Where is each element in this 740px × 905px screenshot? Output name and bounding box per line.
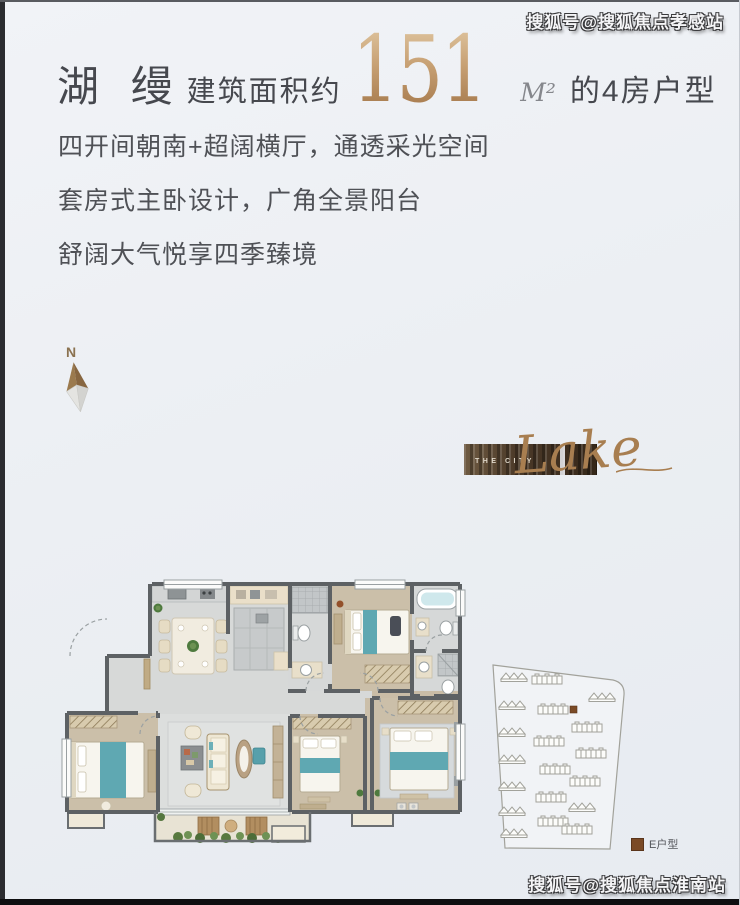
living-room <box>168 722 283 806</box>
bed <box>390 728 448 790</box>
watermark-bottom-right: 搜狐号@搜狐焦点淮南站 <box>528 871 726 896</box>
dining-area <box>152 586 230 674</box>
dresser <box>148 750 156 792</box>
feature-list: 四开间朝南+超阔横厅，通透采光空间 套房式主卧设计，广角全景阳台 舒阔大气悦享四… <box>58 133 490 295</box>
bench <box>400 794 428 799</box>
dresser <box>334 614 342 644</box>
photo-edge-top <box>0 0 740 2</box>
toilet <box>440 621 452 635</box>
logo-flourish-icon <box>616 464 674 476</box>
feature-line: 套房式主卧设计，广角全景阳台 <box>58 187 490 216</box>
wardrobe <box>398 701 453 714</box>
plant <box>357 790 364 797</box>
wardrobe <box>365 665 410 683</box>
area-suffix: 的4房户型 <box>570 66 717 110</box>
watermark-top-right: 搜狐号@搜狐焦点孝感站 <box>526 8 724 33</box>
photo-edge-bottom <box>0 899 740 905</box>
area-value: 151 <box>352 24 485 116</box>
bench <box>308 797 330 802</box>
toilet <box>442 680 454 694</box>
feature-line: 舒阔大气悦享四季臻境 <box>58 241 490 270</box>
sofa <box>207 734 229 790</box>
ball <box>337 601 344 608</box>
legend-swatch <box>631 838 644 851</box>
area-prefix: 建筑面积约 <box>187 68 342 110</box>
foyer <box>144 659 150 689</box>
shower <box>292 587 328 613</box>
project-logo: THE CITY Lake <box>464 438 679 494</box>
highlight-unit-marker <box>570 706 577 713</box>
dresser <box>300 804 326 809</box>
armchair <box>185 726 201 739</box>
pouf <box>101 801 111 811</box>
lounge-chair <box>198 817 219 835</box>
site-plan <box>484 640 686 855</box>
table <box>225 820 237 832</box>
bed <box>345 610 409 654</box>
ottoman <box>253 748 265 764</box>
page-title: 湖 缦 <box>57 53 183 114</box>
site-legend: E户型 <box>631 836 678 852</box>
logo-script-text: Lake <box>512 418 644 487</box>
armchair <box>185 784 201 797</box>
plant <box>157 813 165 821</box>
floor-plan <box>60 556 485 860</box>
compass: N <box>60 344 100 419</box>
kitchen <box>230 586 288 670</box>
feature-line: 四开间朝南+超阔横厅，通透采光空间 <box>58 133 490 162</box>
legend-label: E户型 <box>649 836 678 852</box>
toilet <box>298 625 310 641</box>
north-label: N <box>66 344 100 360</box>
photo-edge-left <box>0 0 5 905</box>
header: 湖 缦 建筑面积约 151 M² 的4房户型 <box>57 24 717 116</box>
bed <box>70 742 144 798</box>
lounge-chair <box>246 817 267 835</box>
flyer-page: 搜狐号@搜狐焦点孝感站 搜狐号@搜狐焦点淮南站 湖 缦 建筑面积约 151 M²… <box>0 0 740 905</box>
bed <box>300 736 340 792</box>
area-unit: M² <box>520 78 556 107</box>
wardrobe <box>70 716 117 728</box>
north-arrow-icon <box>60 360 94 414</box>
